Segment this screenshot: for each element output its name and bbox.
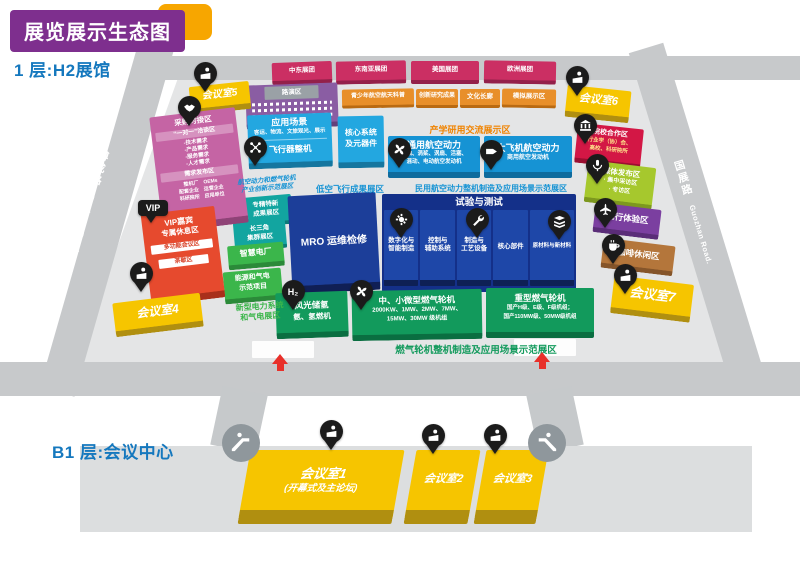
flight-experience-pin xyxy=(592,198,618,235)
exhibition-map: 博成路 Bocheng Road. 国展路 Guozhan Road. 展览展示… xyxy=(0,0,800,563)
arrow-up-icon xyxy=(272,346,288,364)
escalator-right xyxy=(528,424,566,462)
floor1-label: 1 层:H2展馆 xyxy=(14,56,111,81)
entrance-arrow xyxy=(272,346,288,371)
arrow-up-icon xyxy=(534,344,550,362)
escalator-icon xyxy=(536,432,558,454)
meeting7-pin xyxy=(612,264,638,301)
arrow-stem xyxy=(539,362,546,369)
zone-heavy-gas-turbines: 重型燃气轮机 国产H级、E级、F级机组； 国产110MW级、50MW级机组 xyxy=(486,288,594,338)
zone-core-systems: 核心系统 及元器件 xyxy=(338,116,385,169)
b1-room2-pin xyxy=(420,424,446,461)
general-power-pin xyxy=(386,138,412,175)
materials-pin xyxy=(546,210,572,247)
vip-band1: 多功能会议区 xyxy=(151,238,214,254)
zone-mro: MRO 运维检修 xyxy=(287,192,380,294)
industry-exchange-header: 产学研用交流展示区 xyxy=(400,123,540,136)
zone-simulation-display: 模拟展示区 xyxy=(502,89,556,109)
seating-row xyxy=(252,101,332,107)
media-pin xyxy=(584,154,610,191)
zone-b1-meeting-room-2: 会议室2 xyxy=(403,450,480,524)
b1-room1-name: 会议室1 xyxy=(299,466,348,482)
low-altitude-header: 低空飞行成果展区 xyxy=(294,183,406,195)
zone-europe-group: 欧洲展团 xyxy=(484,60,556,84)
zone-b1-meeting-room-3: 会议室3 xyxy=(473,450,548,524)
process-equipment-pin xyxy=(464,208,490,245)
road-bottom xyxy=(0,362,800,396)
institutions-pin xyxy=(572,114,598,151)
zone-control-aux-systems: 控制与 辅助系统 xyxy=(420,210,454,286)
page-title: 展览展示生态图 xyxy=(10,10,185,52)
b1-room1-sub: (开幕式及主论坛) xyxy=(283,482,358,495)
meeting5-pin xyxy=(192,62,218,99)
heavy-gt-title: 重型燃气轮机 xyxy=(486,293,594,304)
vip-pin: VIP xyxy=(138,200,164,230)
zone-culture-corridor: 文化长廊 xyxy=(460,89,500,108)
digital-manufacturing-pin xyxy=(388,208,414,245)
zone-middle-east-group: 中东展团 xyxy=(272,61,333,85)
h2-pin-label: H₂ xyxy=(288,287,299,297)
vip-band2: 茶歇区 xyxy=(158,254,209,269)
roadshow-sign: 路演区 xyxy=(264,85,318,100)
b1-room3-pin xyxy=(482,424,508,461)
gas-turbine-header: 燃气轮机整机制造及应用场景示范展区 xyxy=(356,342,596,356)
seating-row xyxy=(252,107,332,113)
arrow-stem xyxy=(277,364,284,371)
meeting4-pin xyxy=(128,262,154,299)
civil-aviation-header: 民用航空动力整机制造及应用场景示范展区 xyxy=(396,183,586,194)
zone-usa-group: 美国展团 xyxy=(411,61,479,84)
big-aircraft-pin xyxy=(478,140,504,177)
zone-innovation-achievements: 创新研究成果 xyxy=(416,89,458,108)
hydrogen-pin: H₂ xyxy=(280,280,306,317)
floorB1-label: B1 层:会议中心 xyxy=(52,438,174,463)
zone-smart-power-plant: 智慧电厂 xyxy=(227,242,285,271)
escalator-icon xyxy=(230,432,252,454)
heavy-gt-sub: 国产H级、E级、F级机组； 国产110MW级、50MW级机组 xyxy=(486,304,594,321)
gas-turbine-pin xyxy=(348,280,374,317)
zone-core-components: 核心部件 xyxy=(493,210,527,286)
entrance-arrow xyxy=(534,344,550,369)
vip-pin-label: VIP xyxy=(146,203,161,213)
escalator-left xyxy=(222,424,260,462)
b1-room1-pin xyxy=(318,420,344,457)
procurement-pin xyxy=(176,96,202,133)
zone-sea-group: 东南亚展团 xyxy=(336,60,406,84)
zone-youth-science: 青少年航空航天科普 xyxy=(342,88,414,108)
meeting6-pin xyxy=(564,66,590,103)
zone-energy-gas-demo: 能源和气电 示范项目 xyxy=(223,268,284,305)
zone-b1-meeting-room-1: 会议室1 (开幕式及主论坛) xyxy=(237,450,404,524)
drone-pin xyxy=(242,136,268,173)
